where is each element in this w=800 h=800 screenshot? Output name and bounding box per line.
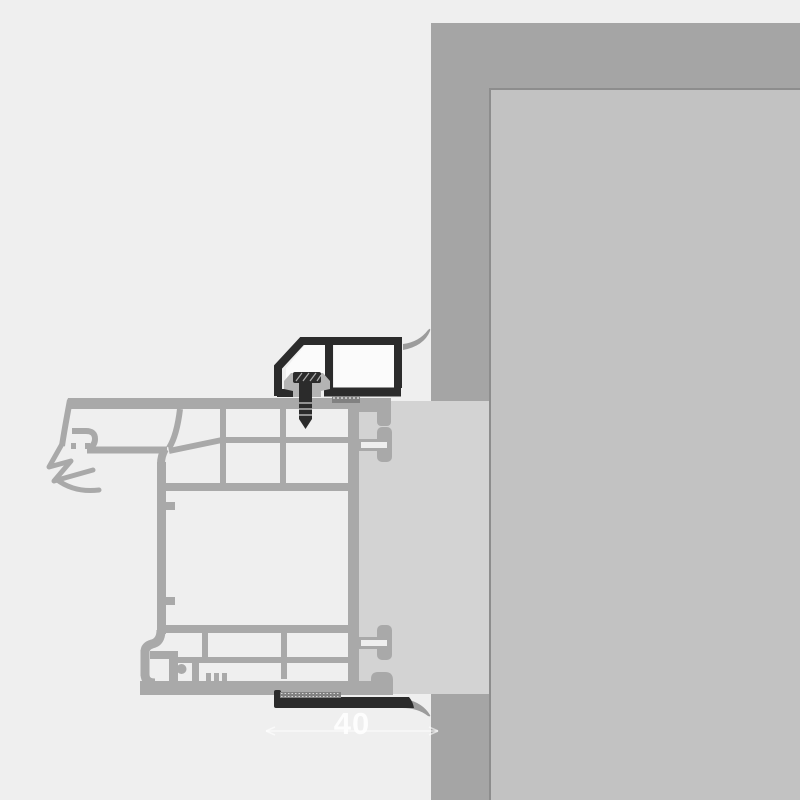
castellation-tooth	[214, 673, 219, 682]
t-rib-upper-slot	[361, 442, 387, 448]
castellation-tooth	[222, 673, 227, 682]
castellation-tooth	[206, 673, 211, 682]
bracket-right-chamber	[334, 345, 394, 389]
dimension-label: 40	[334, 706, 370, 741]
frame-bottom-wall	[140, 681, 393, 695]
keyway-rib	[192, 660, 199, 681]
window-installation-section-drawing: 40	[0, 0, 800, 800]
lip-nub-left	[71, 443, 76, 449]
frame-mid-bar-corner	[161, 449, 165, 464]
screw-head	[293, 372, 321, 383]
wall-nub-lower	[166, 597, 175, 605]
screw-neck	[299, 383, 312, 398]
technical-drawing-canvas: 40	[0, 0, 800, 800]
compression-tape-top	[332, 396, 360, 403]
frame-bottom-right-foot	[371, 672, 393, 695]
groove-hook-leg	[169, 651, 178, 682]
wall-nub-upper	[166, 502, 175, 510]
groove-hook-bump	[177, 664, 187, 674]
wall-inner-panel	[489, 88, 800, 800]
rib-top-hook	[377, 400, 391, 426]
compression-tape-bottom	[280, 692, 341, 698]
t-rib-lower-slot	[361, 640, 387, 646]
